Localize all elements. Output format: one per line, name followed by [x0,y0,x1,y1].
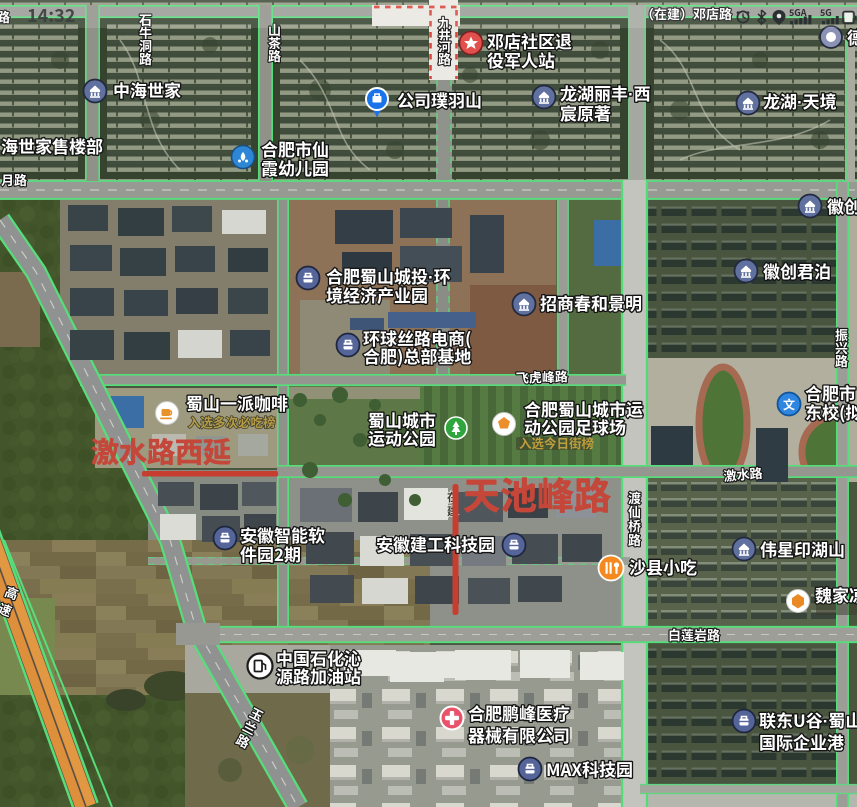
svg-text:沙县小吃: 沙县小吃 [629,554,697,579]
svg-text:入选多次必吃榜: 入选多次必吃榜 [188,412,276,431]
svg-text:激水路: 激水路 [723,463,764,485]
svg-text:海世家售楼部: 海世家售楼部 [1,133,103,158]
svg-text:飞虎峰路: 飞虎峰路 [515,366,568,387]
svg-text:5G: 5G [820,6,832,19]
svg-text:天池峰路: 天池峰路 [463,466,611,520]
svg-text:安徽建工科技园: 安徽建工科技园 [376,531,495,556]
svg-text:源路加油站: 源路加油站 [276,663,361,688]
svg-text:东校(拟: 东校(拟 [805,399,857,424]
svg-text:器械有限公司: 器械有限公司 [468,722,570,747]
svg-text:役军人站: 役军人站 [487,47,555,72]
svg-text:徽创君泊: 徽创君泊 [763,258,831,283]
svg-text:境经济产业园: 境经济产业园 [326,282,428,307]
svg-text:件园2期: 件园2期 [240,541,301,566]
svg-text:月路: 月路 [1,170,27,189]
svg-text:宸原著: 宸原著 [560,100,611,125]
svg-text:国际企业港: 国际企业港 [759,729,844,754]
svg-text:运动公园: 运动公园 [368,425,436,450]
svg-text:激水路西延: 激水路西延 [91,431,231,471]
svg-text:路: 路 [628,530,641,549]
svg-text:魏家凉: 魏家凉 [815,582,857,607]
svg-text:中海世家: 中海世家 [113,77,181,102]
svg-text:入选今日街榜: 入选今日街榜 [519,433,594,452]
svg-text:路: 路 [835,351,848,370]
svg-text:公司璞羽山: 公司璞羽山 [397,87,482,112]
svg-text:伟星印湖山: 伟星印湖山 [760,536,845,561]
svg-text:14:32: 14:32 [27,2,75,28]
svg-text:徽创: 徽创 [827,193,857,218]
svg-text:路: 路 [268,46,281,65]
svg-text:文: 文 [783,396,795,413]
svg-text:路: 路 [139,49,152,68]
svg-text:路: 路 [438,49,451,68]
svg-text:霞幼儿园: 霞幼儿园 [261,155,329,180]
svg-text:招商春和景明: 招商春和景明 [540,290,642,315]
svg-text:MAX科技园: MAX科技园 [546,756,633,781]
svg-text:合肥)总部基地: 合肥)总部基地 [363,343,471,368]
svg-text:白莲岩路: 白莲岩路 [668,625,720,644]
